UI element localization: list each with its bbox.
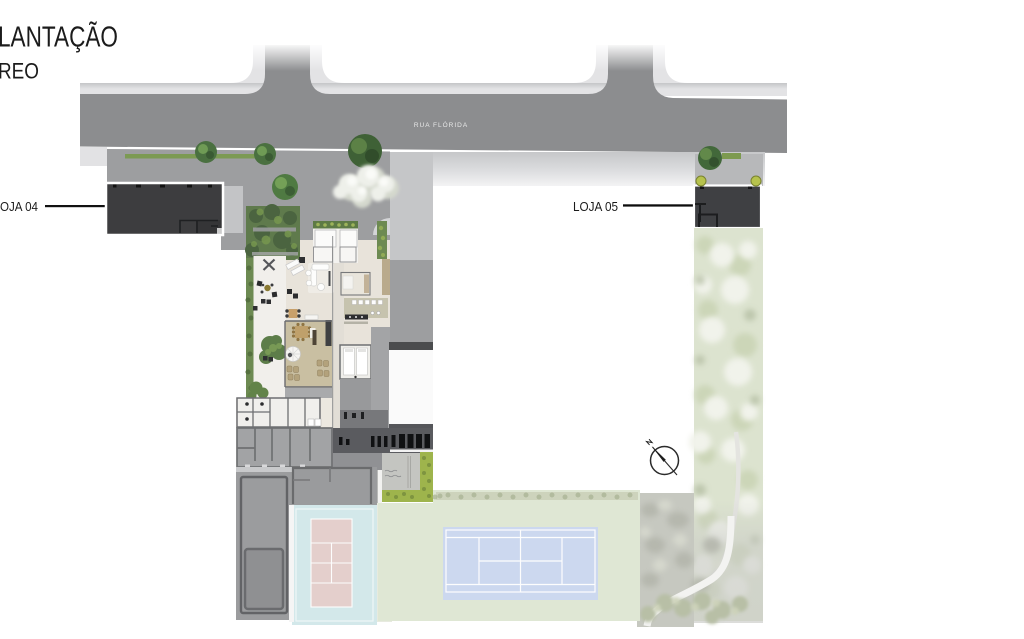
svg-text:LOJA 05: LOJA 05 <box>573 200 618 214</box>
svg-text:OJA 04: OJA 04 <box>0 200 38 214</box>
svg-text:RUA FLÓRIDA: RUA FLÓRIDA <box>414 120 468 129</box>
svg-text:REO: REO <box>0 59 39 84</box>
svg-text:LANTAÇÃO: LANTAÇÃO <box>0 20 118 54</box>
